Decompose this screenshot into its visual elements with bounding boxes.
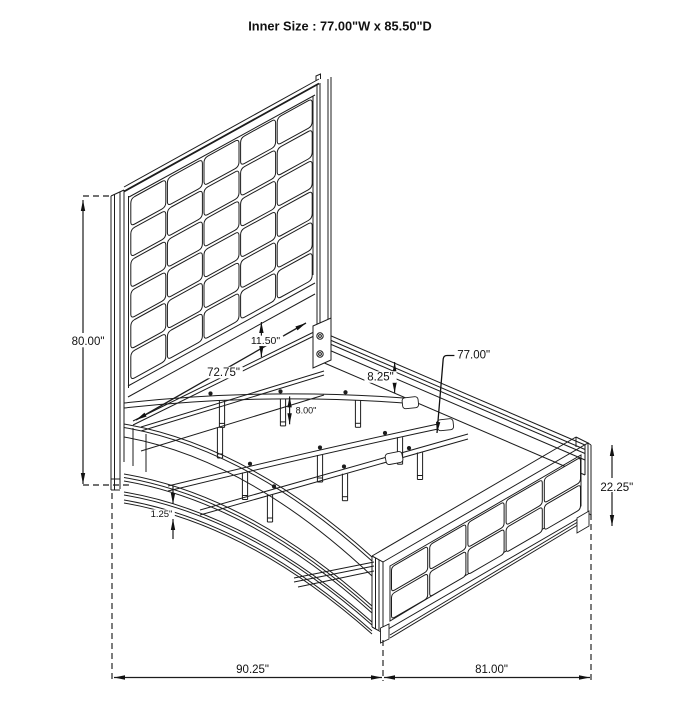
svg-text:Inner Size : 77.00"W x 85.50"D: Inner Size : 77.00"W x 85.50"D: [248, 19, 432, 34]
svg-text:8.00": 8.00": [296, 406, 317, 416]
svg-text:77.00": 77.00": [457, 350, 490, 362]
svg-text:72.75": 72.75": [207, 367, 240, 379]
svg-text:1.25": 1.25": [151, 509, 173, 520]
svg-text:8.25": 8.25": [367, 372, 393, 384]
svg-text:22.25": 22.25": [600, 482, 633, 494]
svg-text:90.25": 90.25": [236, 664, 269, 676]
svg-text:81.00": 81.00": [475, 664, 508, 676]
svg-text:11.50": 11.50": [251, 335, 280, 347]
svg-text:80.00": 80.00": [72, 336, 105, 348]
